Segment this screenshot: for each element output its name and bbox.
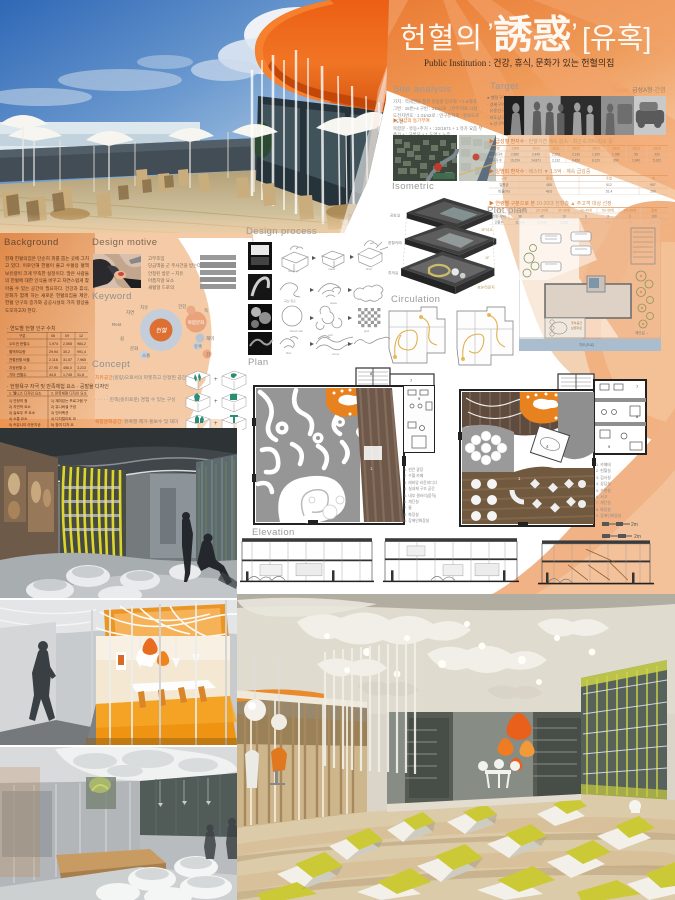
svg-text:997: 997 xyxy=(650,183,656,187)
svg-text:1. 웰니스 디자인 요소: 1. 웰니스 디자인 요소 xyxy=(9,391,42,396)
svg-text:1,340: 1,340 xyxy=(632,159,640,163)
svg-text:5) 참여 디자 요: 5) 참여 디자 요 xyxy=(51,422,74,427)
svg-text:치유: 치유 xyxy=(140,304,148,311)
svg-text:쉼: 쉼 xyxy=(120,335,124,341)
svg-text:1F: 1F xyxy=(485,256,490,260)
svg-text:16,254: 16,254 xyxy=(510,159,520,163)
svg-text:blood cell: blood cell xyxy=(290,329,303,333)
svg-text:2015: 2015 xyxy=(632,147,639,151)
svg-text:-2009: -2009 xyxy=(511,147,519,151)
svg-text:30,2: 30,2 xyxy=(63,350,70,354)
svg-text:456,0: 456,0 xyxy=(63,366,72,370)
svg-text:자연: 자연 xyxy=(126,309,134,316)
svg-text:2,132: 2,132 xyxy=(552,159,560,163)
svg-text:27,95: 27,95 xyxy=(49,366,58,370)
svg-text:구분: 구분 xyxy=(494,146,500,151)
svg-text:mass: mass xyxy=(328,267,336,271)
svg-text:12: 12 xyxy=(79,334,83,338)
svg-text:2014: 2014 xyxy=(612,147,619,151)
svg-text:220: 220 xyxy=(654,153,660,157)
svg-text:욕: 욕 xyxy=(204,308,208,314)
svg-text:혈액보유량: 혈액보유량 xyxy=(9,349,26,354)
svg-text:60~69세: 60~69세 xyxy=(624,208,636,213)
svg-text:차도(도로): 차도(도로) xyxy=(579,342,594,347)
svg-text:2016: 2016 xyxy=(653,147,660,151)
svg-text:1) 재미있는 프로그램 구: 1) 재미있는 프로그램 구 xyxy=(51,398,88,403)
svg-text:유혹: 유혹 xyxy=(194,343,202,350)
svg-text:1,974: 1,974 xyxy=(49,342,58,346)
svg-text:50~59세: 50~59세 xyxy=(602,208,614,213)
svg-text:지정헌혈 수: 지정헌혈 수 xyxy=(9,365,27,370)
svg-text:1) 안정의 점: 1) 안정의 점 xyxy=(9,398,27,403)
svg-text:수도권 헌혈수: 수도권 헌혈수 xyxy=(9,341,31,346)
svg-text:2,116: 2,116 xyxy=(49,358,58,362)
svg-text:문화: 문화 xyxy=(130,346,138,352)
svg-text:2,650: 2,650 xyxy=(511,153,519,157)
svg-text:B1F라운지: B1F라운지 xyxy=(478,285,495,290)
svg-text:구분: 구분 xyxy=(501,176,507,181)
svg-text:기타 연혈수: 기타 연혈수 xyxy=(9,372,27,377)
svg-text:3,213: 3,213 xyxy=(77,366,86,370)
svg-text:10~19세: 10~19세 xyxy=(514,208,526,213)
svg-text:2) 자연적 요소: 2) 자연적 요소 xyxy=(9,404,31,409)
svg-text:984,2: 984,2 xyxy=(77,342,86,346)
svg-text:주말: 주말 xyxy=(606,176,612,181)
svg-text:전혈헌혈 비율: 전혈헌혈 비율 xyxy=(9,357,31,362)
svg-text:계단길 →: 계단길 → xyxy=(635,330,649,335)
svg-text:4) 소통 요소: 4) 소통 요소 xyxy=(9,416,28,421)
svg-text:2m: 2m xyxy=(631,522,638,528)
svg-text:8,120: 8,120 xyxy=(592,159,600,163)
svg-text:2011: 2011 xyxy=(553,147,560,151)
svg-text:2) 유니버셜 구성: 2) 유니버셜 구성 xyxy=(51,404,76,409)
svg-text:재미: 재미 xyxy=(206,335,214,342)
svg-text:9,456: 9,456 xyxy=(572,159,580,163)
svg-text:3) 인터랙션: 3) 인터랙션 xyxy=(51,410,68,415)
svg-text:+: + xyxy=(214,421,218,427)
svg-text:31,57: 31,57 xyxy=(63,358,72,362)
svg-text:주차공간: 주차공간 xyxy=(571,320,582,325)
svg-text:계: 계 xyxy=(651,176,654,181)
svg-text:wave: wave xyxy=(330,301,337,305)
svg-text:5) 커뮤니티 라운지공: 5) 커뮤니티 라운지공 xyxy=(9,422,41,427)
svg-text:485: 485 xyxy=(546,183,552,187)
svg-text:cell: cell xyxy=(328,333,333,337)
svg-text:+: + xyxy=(214,377,218,383)
svg-text:991,4: 991,4 xyxy=(77,350,86,354)
svg-text:2,130: 2,130 xyxy=(572,153,580,157)
svg-text:final: final xyxy=(366,267,372,271)
svg-text:2010: 2010 xyxy=(532,147,539,151)
svg-text:2,065: 2,065 xyxy=(63,342,72,346)
svg-text:5,162: 5,162 xyxy=(653,159,661,163)
svg-text:곡선 유출: 곡선 유출 xyxy=(284,298,296,303)
svg-text:06: 06 xyxy=(51,334,55,338)
svg-text:공방실: 공방실 xyxy=(390,212,401,217)
svg-text:flow: flow xyxy=(286,351,292,355)
svg-text:2F서고: 2F서고 xyxy=(481,227,493,232)
svg-text:비율(%): 비율(%) xyxy=(498,189,510,194)
svg-text:평일: 평일 xyxy=(546,176,552,181)
svg-text:헌혈: 헌혈 xyxy=(155,327,168,335)
svg-text:grid: grid xyxy=(364,329,369,333)
svg-text:20~29세: 20~29세 xyxy=(536,208,548,213)
svg-text:보행자로: 보행자로 xyxy=(571,325,582,330)
svg-text:1,780: 1,780 xyxy=(612,153,620,157)
svg-text:2013: 2013 xyxy=(592,147,599,151)
svg-text:curve: curve xyxy=(332,352,340,355)
svg-text:복합문화: 복합문화 xyxy=(188,319,205,326)
svg-text:1,745: 1,745 xyxy=(63,373,72,377)
svg-text:4) 디지털아트 요: 4) 디지털아트 요 xyxy=(51,416,77,421)
svg-text:30~39세: 30~39세 xyxy=(558,208,570,213)
svg-text:3) 슬로우 프 요소: 3) 슬로우 프 요소 xyxy=(9,410,36,415)
svg-text:29,94: 29,94 xyxy=(49,350,58,354)
svg-text:512: 512 xyxy=(606,183,612,187)
svg-text:건강: 건강 xyxy=(178,303,186,309)
svg-text:40~49세: 40~49세 xyxy=(580,208,592,213)
svg-text:1,920: 1,920 xyxy=(592,153,600,157)
svg-text:소통: 소통 xyxy=(142,353,150,358)
svg-text:환자 수: 환자 수 xyxy=(492,158,502,163)
svg-text:100: 100 xyxy=(650,190,656,194)
svg-text:+: + xyxy=(214,399,218,405)
svg-text:44,5: 44,5 xyxy=(49,373,56,377)
svg-text:감: 감 xyxy=(206,351,210,357)
svg-text:헌혈자수: 헌혈자수 xyxy=(491,152,503,157)
svg-text:합계: 합계 xyxy=(651,208,657,213)
svg-text:2m: 2m xyxy=(634,534,641,540)
svg-text:51.4: 51.4 xyxy=(606,190,613,194)
svg-text:concept: concept xyxy=(288,269,299,273)
svg-text:2,312: 2,312 xyxy=(552,153,560,157)
svg-text:2,445: 2,445 xyxy=(532,153,540,157)
svg-text:2012: 2012 xyxy=(572,147,579,151)
svg-text:09: 09 xyxy=(65,334,69,338)
svg-text:일평균: 일평균 xyxy=(499,182,508,187)
svg-text:구분: 구분 xyxy=(19,333,26,338)
svg-text:990: 990 xyxy=(613,159,619,163)
svg-text:Rest: Rest xyxy=(112,322,122,327)
svg-text:48.6: 48.6 xyxy=(546,190,553,194)
svg-text:2. 만족체험 디자인 요소: 2. 만족체험 디자인 요소 xyxy=(51,391,87,396)
svg-text:7,965: 7,965 xyxy=(77,358,86,362)
svg-text:31,8: 31,8 xyxy=(77,373,84,377)
svg-text:95: 95 xyxy=(634,153,638,157)
svg-text:14,871: 14,871 xyxy=(531,159,541,163)
